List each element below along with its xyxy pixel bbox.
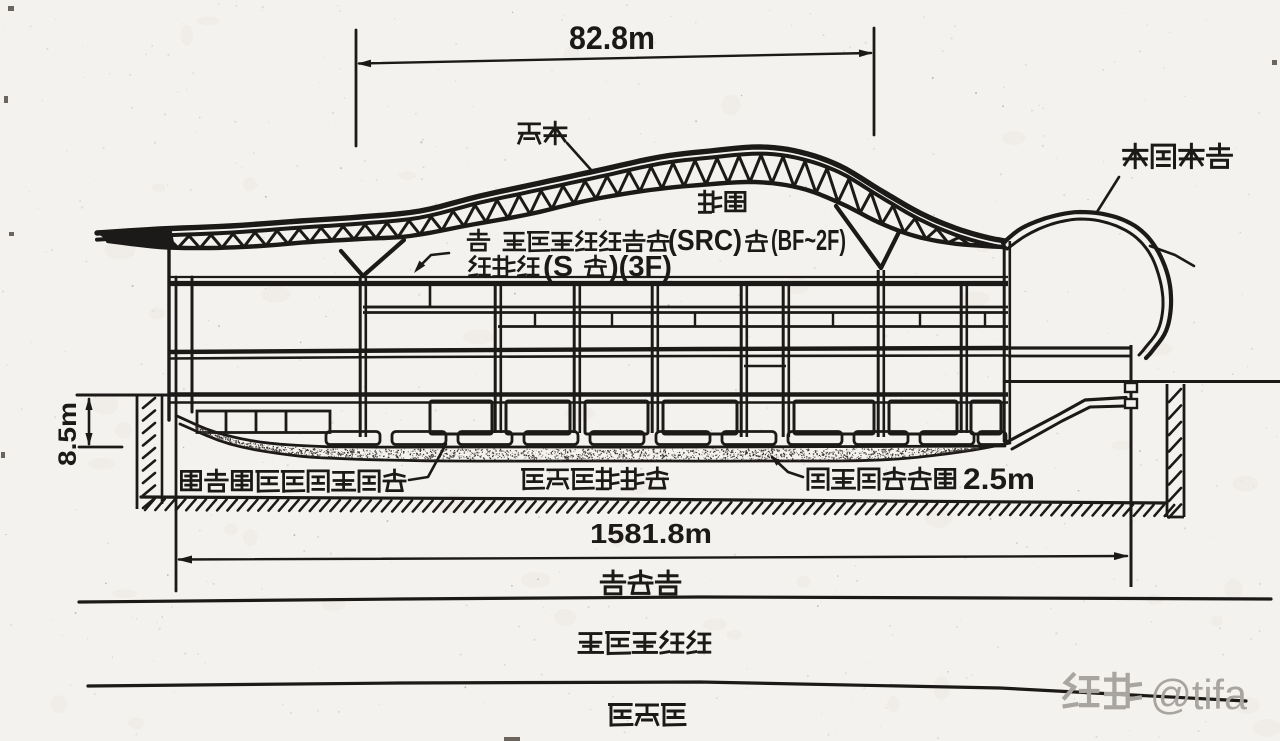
svg-text:82.8m: 82.8m: [569, 20, 655, 56]
svg-text:1581.8m: 1581.8m: [590, 518, 712, 549]
svg-text:(SRC): (SRC): [668, 225, 742, 257]
svg-text:(BF~2F): (BF~2F): [771, 225, 846, 257]
svg-text:@tifa: @tifa: [1150, 671, 1248, 718]
svg-text:(S: (S: [543, 251, 573, 283]
svg-text:8.5m: 8.5m: [54, 402, 82, 466]
svg-text:)(3F): )(3F): [609, 251, 672, 283]
svg-text:2.5m: 2.5m: [963, 463, 1035, 496]
